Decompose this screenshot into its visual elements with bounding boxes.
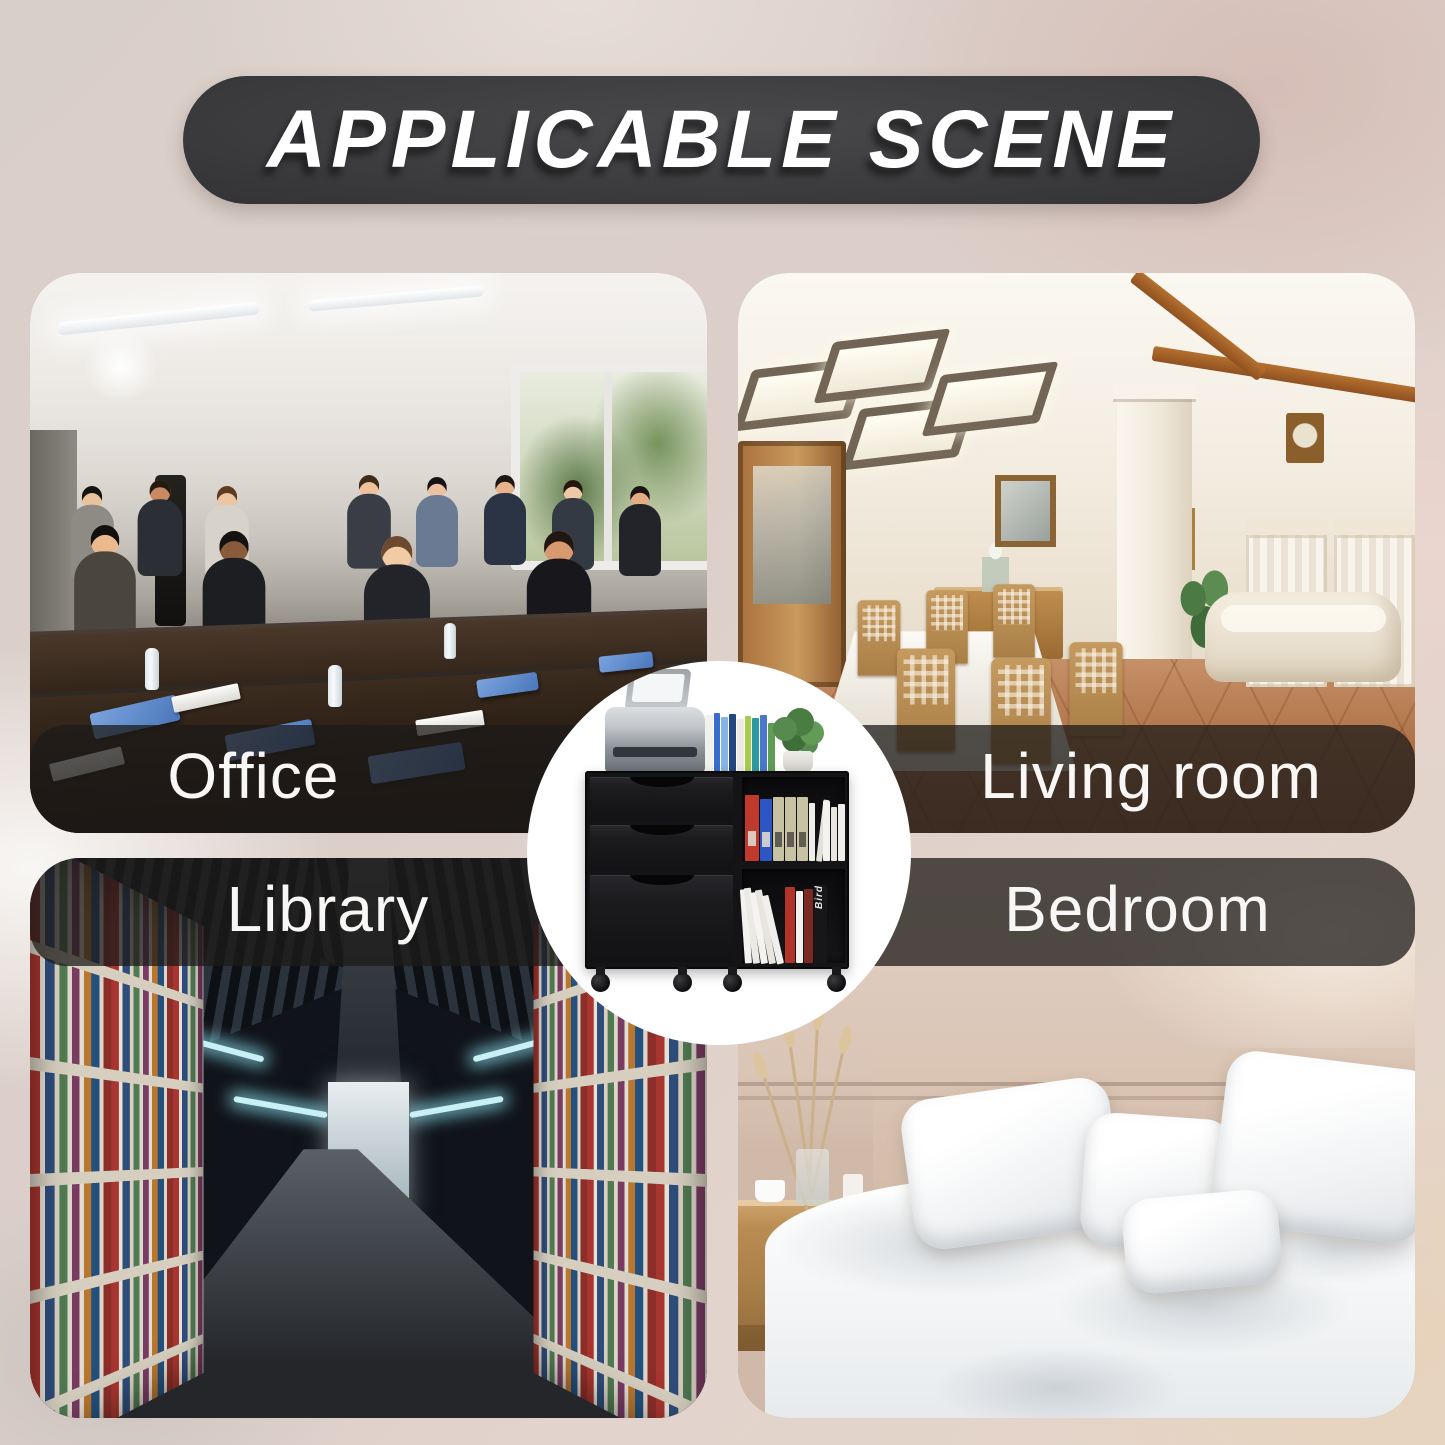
skylight-panel xyxy=(813,328,950,403)
printer-paper-tray xyxy=(624,669,691,711)
caster-wheel xyxy=(673,973,692,992)
dining-chair xyxy=(858,600,901,675)
product-badge: Bird xyxy=(527,661,911,1045)
beige-binder xyxy=(797,797,808,861)
pillow xyxy=(1120,1187,1283,1295)
printer xyxy=(605,707,705,773)
book-spine-title: Bird xyxy=(814,885,825,909)
book-spine xyxy=(831,807,837,861)
page: { "header": { "title": "APPLICABLE SCENE… xyxy=(0,0,1445,1445)
water-bottle xyxy=(444,623,456,659)
books-on-top xyxy=(705,711,775,775)
dining-chair xyxy=(994,585,1036,659)
book-spine xyxy=(721,717,728,775)
blue-binder xyxy=(760,799,772,861)
book-spine xyxy=(705,715,713,775)
red-book xyxy=(785,887,795,963)
water-bottle xyxy=(145,648,159,690)
book-spine xyxy=(745,716,752,775)
caster-wheel xyxy=(827,973,846,992)
page-title: APPLICABLE SCENE xyxy=(267,93,1176,187)
book-spine xyxy=(838,804,845,861)
book-spine xyxy=(714,713,721,775)
person-silhouette xyxy=(484,475,526,565)
plant-foliage xyxy=(773,717,797,741)
cabinet-drawer xyxy=(590,777,733,821)
book-spine xyxy=(809,803,815,861)
cabinet-file-drawer xyxy=(590,875,733,963)
open-shelf-top xyxy=(742,777,845,861)
book-spine xyxy=(823,801,830,861)
book-spine xyxy=(760,715,768,775)
book-spine xyxy=(729,714,737,775)
book-spine xyxy=(737,719,744,775)
dining-chair xyxy=(1069,642,1122,736)
red-binder xyxy=(745,795,759,861)
open-shelf-bottom: Bird xyxy=(742,869,845,963)
ceiling-light xyxy=(57,302,260,336)
ceiling-light xyxy=(307,285,483,311)
cabinet-drawer xyxy=(590,825,733,871)
plant-pot xyxy=(783,751,813,773)
cream-sofa xyxy=(1205,592,1401,682)
living-room-label: Living room xyxy=(980,739,1322,813)
beige-binder xyxy=(773,797,784,861)
person-silhouette xyxy=(619,486,661,576)
maroon-book xyxy=(804,889,813,963)
wall-mirror xyxy=(995,475,1056,548)
light-glow xyxy=(84,329,158,403)
wall-clock xyxy=(1286,413,1323,463)
header-banner: APPLICABLE SCENE xyxy=(183,76,1260,204)
bedroom-label: Bedroom xyxy=(1004,872,1271,946)
library-label: Library xyxy=(227,872,430,946)
neon-light xyxy=(233,1096,327,1118)
book-spine xyxy=(752,718,759,775)
coffee-cup xyxy=(755,1180,785,1202)
office-label: Office xyxy=(167,739,339,813)
water-bottle xyxy=(328,665,342,707)
black-book: Bird xyxy=(814,885,827,963)
caster-wheel xyxy=(723,973,742,992)
person-silhouette xyxy=(137,480,182,576)
display-cabinet xyxy=(738,441,846,687)
book-spine xyxy=(796,891,803,963)
glass-vase xyxy=(796,1149,830,1205)
file-cabinet-body: Bird xyxy=(585,771,849,969)
caster-wheel xyxy=(591,973,610,992)
skylight-panel xyxy=(922,362,1059,437)
infographic-canvas: APPLICABLE SCENE xyxy=(0,0,1445,1445)
neon-light xyxy=(409,1096,503,1118)
beige-binder xyxy=(785,797,796,861)
